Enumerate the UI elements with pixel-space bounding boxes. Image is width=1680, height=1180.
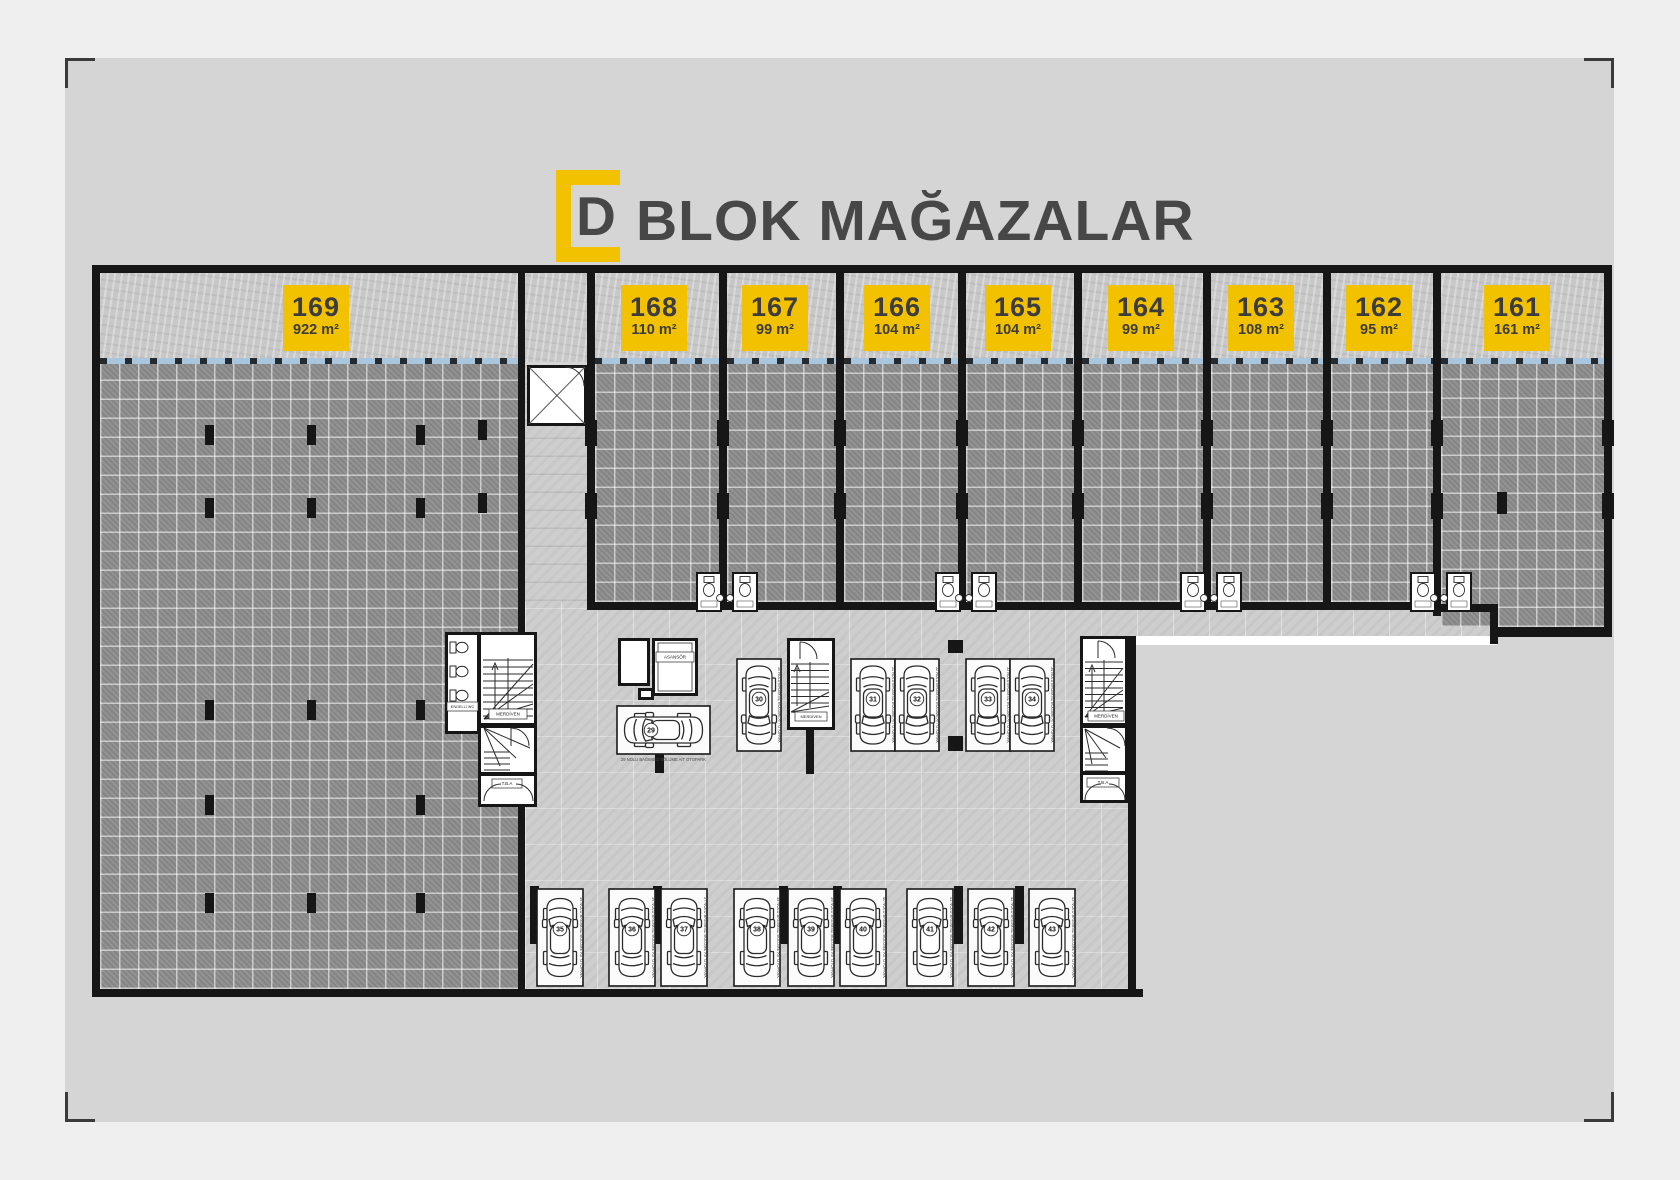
store-label-167[interactable]: 16799 m² <box>742 285 808 351</box>
parking-spot-36[interactable]: 3636 NOLU BAĞIMSIZ BÖLÜME AİT OTOPARK <box>609 889 656 986</box>
svg-text:43 NOLU BAĞIMSIZ BÖLÜME AİT OT: 43 NOLU BAĞIMSIZ BÖLÜME AİT OTOPARK <box>1071 897 1076 978</box>
store-label-165[interactable]: 165104 m² <box>985 285 1051 351</box>
store-label-161[interactable]: 161161 m² <box>1484 285 1550 351</box>
store-area: 104 m² <box>985 322 1051 338</box>
svg-text:35 NOLU BAĞIMSIZ BÖLÜME AİT OT: 35 NOLU BAĞIMSIZ BÖLÜME AİT OTOPARK <box>579 897 584 978</box>
parking-spot-38[interactable]: 3838 NOLU BAĞIMSIZ BÖLÜME AİT OTOPARK <box>734 889 781 986</box>
svg-text:38 NOLU BAĞIMSIZ BÖLÜME AİT OT: 38 NOLU BAĞIMSIZ BÖLÜME AİT OTOPARK <box>776 897 781 978</box>
store-area: 110 m² <box>621 322 687 338</box>
parking-spot-29[interactable]: 2929 NOLU BAĞIMSIZ BÖLÜME AİT OTOPARK <box>617 706 710 762</box>
room-label: ENGELLİ WC <box>451 704 475 709</box>
parking-spot-42[interactable]: 4242 NOLU BAĞIMSIZ BÖLÜME AİT OTOPARK <box>968 889 1015 986</box>
svg-text:35: 35 <box>556 926 564 933</box>
svg-text:37 NOLU BAĞIMSIZ BÖLÜME AİT OT: 37 NOLU BAĞIMSIZ BÖLÜME AİT OTOPARK <box>703 897 708 978</box>
svg-text:39: 39 <box>807 926 815 933</box>
parking-spot-40[interactable]: 4040 NOLU BAĞIMSIZ BÖLÜME AİT OTOPARK <box>840 889 887 986</box>
store-number: 161 <box>1484 293 1550 322</box>
svg-text:33: 33 <box>984 696 992 703</box>
store-area: 108 m² <box>1228 322 1294 338</box>
parking-spot-30[interactable]: 3030 NOLU BAĞIMSIZ BÖLÜME AİT OTOPARK <box>737 659 782 751</box>
store-label-162[interactable]: 16295 m² <box>1346 285 1412 351</box>
svg-text:37: 37 <box>680 926 688 933</box>
store-label-166[interactable]: 166104 m² <box>864 285 930 351</box>
svg-text:30: 30 <box>755 696 763 703</box>
store-label-168[interactable]: 168110 m² <box>621 285 687 351</box>
parking-spot-43[interactable]: 4343 NOLU BAĞIMSIZ BÖLÜME AİT OTOPARK <box>1029 889 1076 986</box>
svg-text:29: 29 <box>647 727 655 734</box>
svg-text:36 NOLU BAĞIMSIZ BÖLÜME AİT OT: 36 NOLU BAĞIMSIZ BÖLÜME AİT OTOPARK <box>651 897 656 978</box>
store-number: 168 <box>621 293 687 322</box>
room-label: MERDİVEN <box>800 714 821 719</box>
store-label-163[interactable]: 163108 m² <box>1228 285 1294 351</box>
room-label: ASANSÖR <box>664 654 687 660</box>
store-number: 164 <box>1108 293 1174 322</box>
svg-text:41: 41 <box>926 926 934 933</box>
svg-text:29 NOLU BAĞIMSIZ BÖLÜME AİT OT: 29 NOLU BAĞIMSIZ BÖLÜME AİT OTOPARK <box>621 757 706 762</box>
svg-text:39 NOLU BAĞIMSIZ BÖLÜME AİT OT: 39 NOLU BAĞIMSIZ BÖLÜME AİT OTOPARK <box>830 897 835 978</box>
store-number: 167 <box>742 293 808 322</box>
store-label-169[interactable]: 169922 m² <box>283 285 349 351</box>
store-area: 104 m² <box>864 322 930 338</box>
store-number: 163 <box>1228 293 1294 322</box>
svg-text:32 NOLU BAĞIMSIZ BÖLÜME AİT OT: 32 NOLU BAĞIMSIZ BÖLÜME AİT OTOPARK <box>935 667 940 743</box>
store-area: 95 m² <box>1346 322 1412 338</box>
parking-spot-37[interactable]: 3737 NOLU BAĞIMSIZ BÖLÜME AİT OTOPARK <box>661 889 708 986</box>
svg-text:42 NOLU BAĞIMSIZ BÖLÜME AİT OT: 42 NOLU BAĞIMSIZ BÖLÜME AİT OTOPARK <box>1010 897 1015 978</box>
store-area: 99 m² <box>1108 322 1174 338</box>
parking-spot-31[interactable]: 3131 NOLU BAĞIMSIZ BÖLÜME AİT OTOPARK <box>851 659 896 751</box>
svg-text:40: 40 <box>859 926 867 933</box>
parking-spot-39[interactable]: 3939 NOLU BAĞIMSIZ BÖLÜME AİT OTOPARK <box>788 889 835 986</box>
svg-text:42: 42 <box>987 926 995 933</box>
svg-text:34: 34 <box>1028 696 1036 703</box>
svg-text:41 NOLU BAĞIMSIZ BÖLÜME AİT OT: 41 NOLU BAĞIMSIZ BÖLÜME AİT OTOPARK <box>949 897 954 978</box>
room-label: MERDİVEN <box>496 711 520 717</box>
parking-spot-35[interactable]: 3535 NOLU BAĞIMSIZ BÖLÜME AİT OTOPARK <box>537 889 584 986</box>
parking-spot-32[interactable]: 3232 NOLU BAĞIMSIZ BÖLÜME AİT OTOPARK <box>895 659 940 751</box>
floor-plan-page: D BLOK MAĞAZALAR <box>0 0 1680 1180</box>
svg-text:38: 38 <box>753 926 761 933</box>
svg-text:32: 32 <box>913 696 921 703</box>
room-label: MERDİVEN <box>1094 713 1118 719</box>
parking-spot-33[interactable]: 3333 NOLU BAĞIMSIZ BÖLÜME AİT OTOPARK <box>966 659 1011 751</box>
parking-spot-34[interactable]: 3434 NOLU BAĞIMSIZ BÖLÜME AİT OTOPARK <box>1010 659 1055 751</box>
svg-text:40 NOLU BAĞIMSIZ BÖLÜME AİT OT: 40 NOLU BAĞIMSIZ BÖLÜME AİT OTOPARK <box>882 897 887 978</box>
store-number: 169 <box>283 293 349 322</box>
store-area: 922 m² <box>283 322 349 338</box>
svg-text:34 NOLU BAĞIMSIZ BÖLÜME AİT OT: 34 NOLU BAĞIMSIZ BÖLÜME AİT OTOPARK <box>1050 667 1055 743</box>
store-number: 166 <box>864 293 930 322</box>
store-number: 162 <box>1346 293 1412 322</box>
store-label-164[interactable]: 16499 m² <box>1108 285 1174 351</box>
svg-text:36: 36 <box>628 926 636 933</box>
parking-spot-41[interactable]: 4141 NOLU BAĞIMSIZ BÖLÜME AİT OTOPARK <box>907 889 954 986</box>
svg-text:30 NOLU BAĞIMSIZ BÖLÜME AİT OT: 30 NOLU BAĞIMSIZ BÖLÜME AİT OTOPARK <box>777 667 782 743</box>
store-area: 99 m² <box>742 322 808 338</box>
store-area: 161 m² <box>1484 322 1550 338</box>
svg-text:43: 43 <box>1048 926 1056 933</box>
svg-text:31: 31 <box>869 696 877 703</box>
room-label: T.B.A <box>502 781 513 786</box>
linework-layer: MERDİVENT.B.AENGELLİ WCASANSÖRMERDİVENME… <box>0 0 1680 1180</box>
store-number: 165 <box>985 293 1051 322</box>
